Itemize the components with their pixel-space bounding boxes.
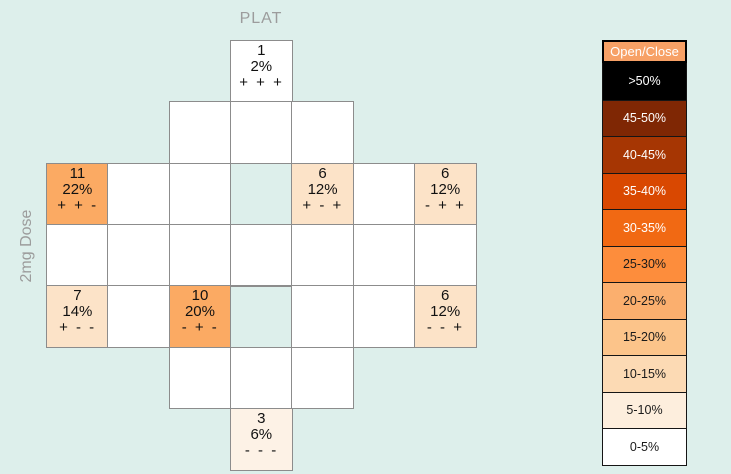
cell-count: 6 (318, 166, 326, 182)
legend-bin-25-30: 25-30% (603, 246, 686, 283)
legend-bin-50: >50% (603, 63, 686, 100)
grid-cell-r3c5 (353, 224, 416, 287)
grid-cell-r6c3----: 36%- - - (230, 408, 293, 471)
grid-cell-r4c3 (230, 285, 293, 348)
grid-cell-r2c6--++: 612%- + + (414, 163, 477, 226)
cell-signs: + - + (302, 198, 342, 214)
cell-signs: + + - (57, 198, 97, 214)
grid-cell-r4c2--+-: 1020%- + - (169, 285, 232, 348)
legend: Open/Close >50%45-50%40-45%35-40%30-35%2… (602, 40, 687, 466)
grid-cell-r2c5 (353, 163, 416, 226)
cell-percent: 12% (308, 182, 338, 198)
grid-cell-r4c0-+--: 714%+ - - (46, 285, 109, 348)
cell-percent: 6% (250, 427, 272, 443)
grid-cell-r1c3 (230, 101, 293, 164)
grid-cell-r3c3 (230, 224, 293, 287)
grid-cell-r3c1 (107, 224, 170, 287)
grid-cell-r1c4 (291, 101, 354, 164)
cell-count: 11 (70, 166, 86, 182)
cell-percent: 12% (430, 304, 460, 320)
grid-cell-r4c1 (107, 285, 170, 348)
grid-cell-r1c2 (169, 101, 232, 164)
grid-cell-r3c0 (46, 224, 109, 287)
cell-count: 10 (192, 288, 209, 304)
legend-bin-0-5: 0-5% (603, 428, 686, 465)
legend-open-close-button[interactable]: Open/Close (602, 40, 687, 63)
cell-signs: - - + (427, 320, 464, 336)
legend-bin-40-45: 40-45% (603, 136, 686, 173)
cell-percent: 12% (430, 182, 460, 198)
grid-cell-r5c4 (291, 347, 354, 410)
grid-cell-r2c3 (230, 163, 293, 226)
grid-cell-r5c2 (169, 347, 232, 410)
legend-scale: >50%45-50%40-45%35-40%30-35%25-30%20-25%… (602, 63, 687, 466)
grid-cell-r3c4 (291, 224, 354, 287)
cell-count: 7 (73, 288, 81, 304)
cell-signs: - + + (425, 198, 465, 214)
grid-cell-r4c6---+: 612%- - + (414, 285, 477, 348)
grid-cell-r4c5 (353, 285, 416, 348)
legend-bin-5-10: 5-10% (603, 392, 686, 429)
factorial-design-chart: PLAT 2mg Dose 12%+ + +1122%+ + -612%+ - … (0, 0, 731, 474)
legend-bin-30-35: 30-35% (603, 209, 686, 246)
grid-cell-r5c3 (230, 347, 293, 410)
grid-cell-r4c4 (291, 285, 354, 348)
legend-bin-45-50: 45-50% (603, 100, 686, 137)
left-axis-label: 2mg Dose (18, 210, 36, 283)
cell-percent: 20% (185, 304, 215, 320)
grid-cell-r0c3-+++: 12%+ + + (230, 40, 293, 103)
cell-percent: 2% (250, 59, 272, 75)
cell-percent: 14% (62, 304, 92, 320)
cell-signs: - + - (182, 320, 219, 336)
grid-cell-r3c6 (414, 224, 477, 287)
grid-cell-r3c2 (169, 224, 232, 287)
top-axis-label: PLAT (200, 10, 322, 28)
grid-cell-r2c1 (107, 163, 170, 226)
cell-count: 3 (257, 411, 265, 427)
cell-count: 6 (441, 166, 449, 182)
grid-cell-r2c4-+-+: 612%+ - + (291, 163, 354, 226)
cell-signs: - - - (245, 443, 278, 459)
cell-count: 1 (257, 43, 265, 59)
legend-bin-20-25: 20-25% (603, 282, 686, 319)
legend-bin-10-15: 10-15% (603, 355, 686, 392)
legend-bin-15-20: 15-20% (603, 319, 686, 356)
legend-bin-35-40: 35-40% (603, 173, 686, 210)
grid-cell-r2c2 (169, 163, 232, 226)
cell-count: 6 (441, 288, 449, 304)
cell-signs: + + + (239, 75, 283, 91)
cell-signs: + - - (59, 320, 96, 336)
grid-cell-r2c0-++-: 1122%+ + - (46, 163, 109, 226)
cell-percent: 22% (62, 182, 92, 198)
